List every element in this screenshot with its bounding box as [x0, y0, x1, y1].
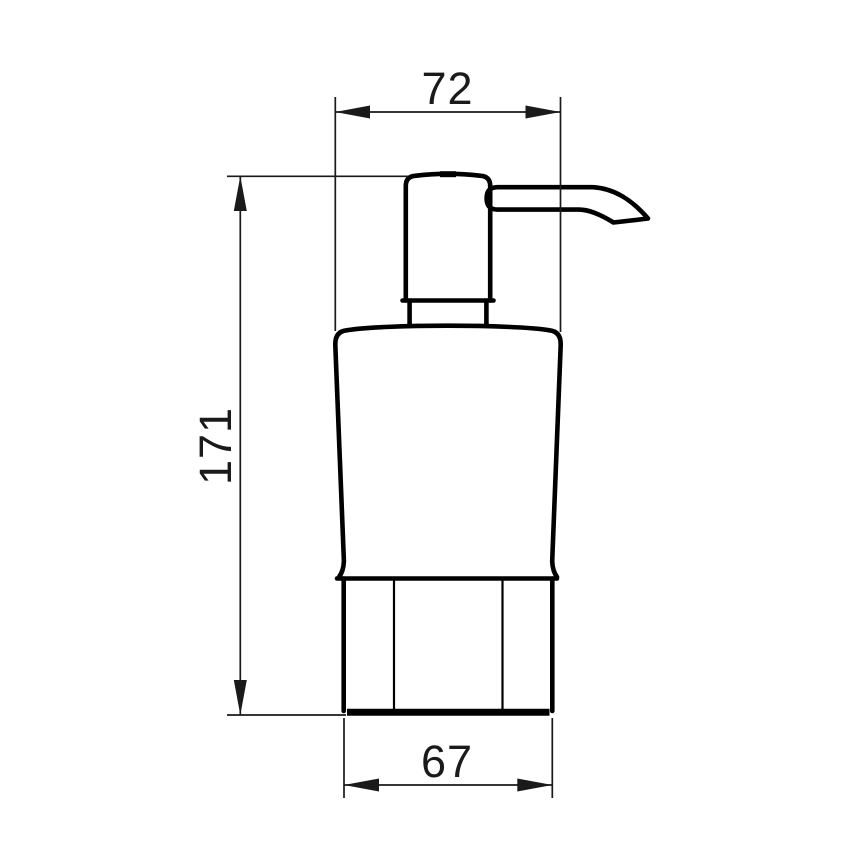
pump-head: [406, 174, 490, 301]
dimension-label-bottom-width: 67: [421, 736, 473, 787]
arrowhead-right: [526, 106, 561, 119]
arrowhead-right: [517, 779, 552, 792]
dispenser-drawing: [335, 174, 648, 712]
pump-collar: [410, 301, 487, 325]
dispenser-dimension-diagram: 72 171 67: [0, 0, 850, 850]
dimension-height: 171: [190, 176, 408, 715]
arrowhead-left: [335, 106, 370, 119]
arrowhead-top: [234, 176, 247, 211]
arrowhead-bottom: [234, 680, 247, 715]
dimension-label-top-width: 72: [421, 63, 473, 114]
bottle-body: [335, 326, 560, 577]
arrowhead-left: [344, 779, 379, 792]
technical-drawing-canvas: 72 171 67: [0, 0, 850, 850]
dimension-label-height: 171: [190, 407, 241, 485]
pump-spout: [487, 187, 648, 222]
dimension-top-width: 72: [335, 63, 560, 332]
dimension-bottom-width: 67: [344, 718, 552, 798]
